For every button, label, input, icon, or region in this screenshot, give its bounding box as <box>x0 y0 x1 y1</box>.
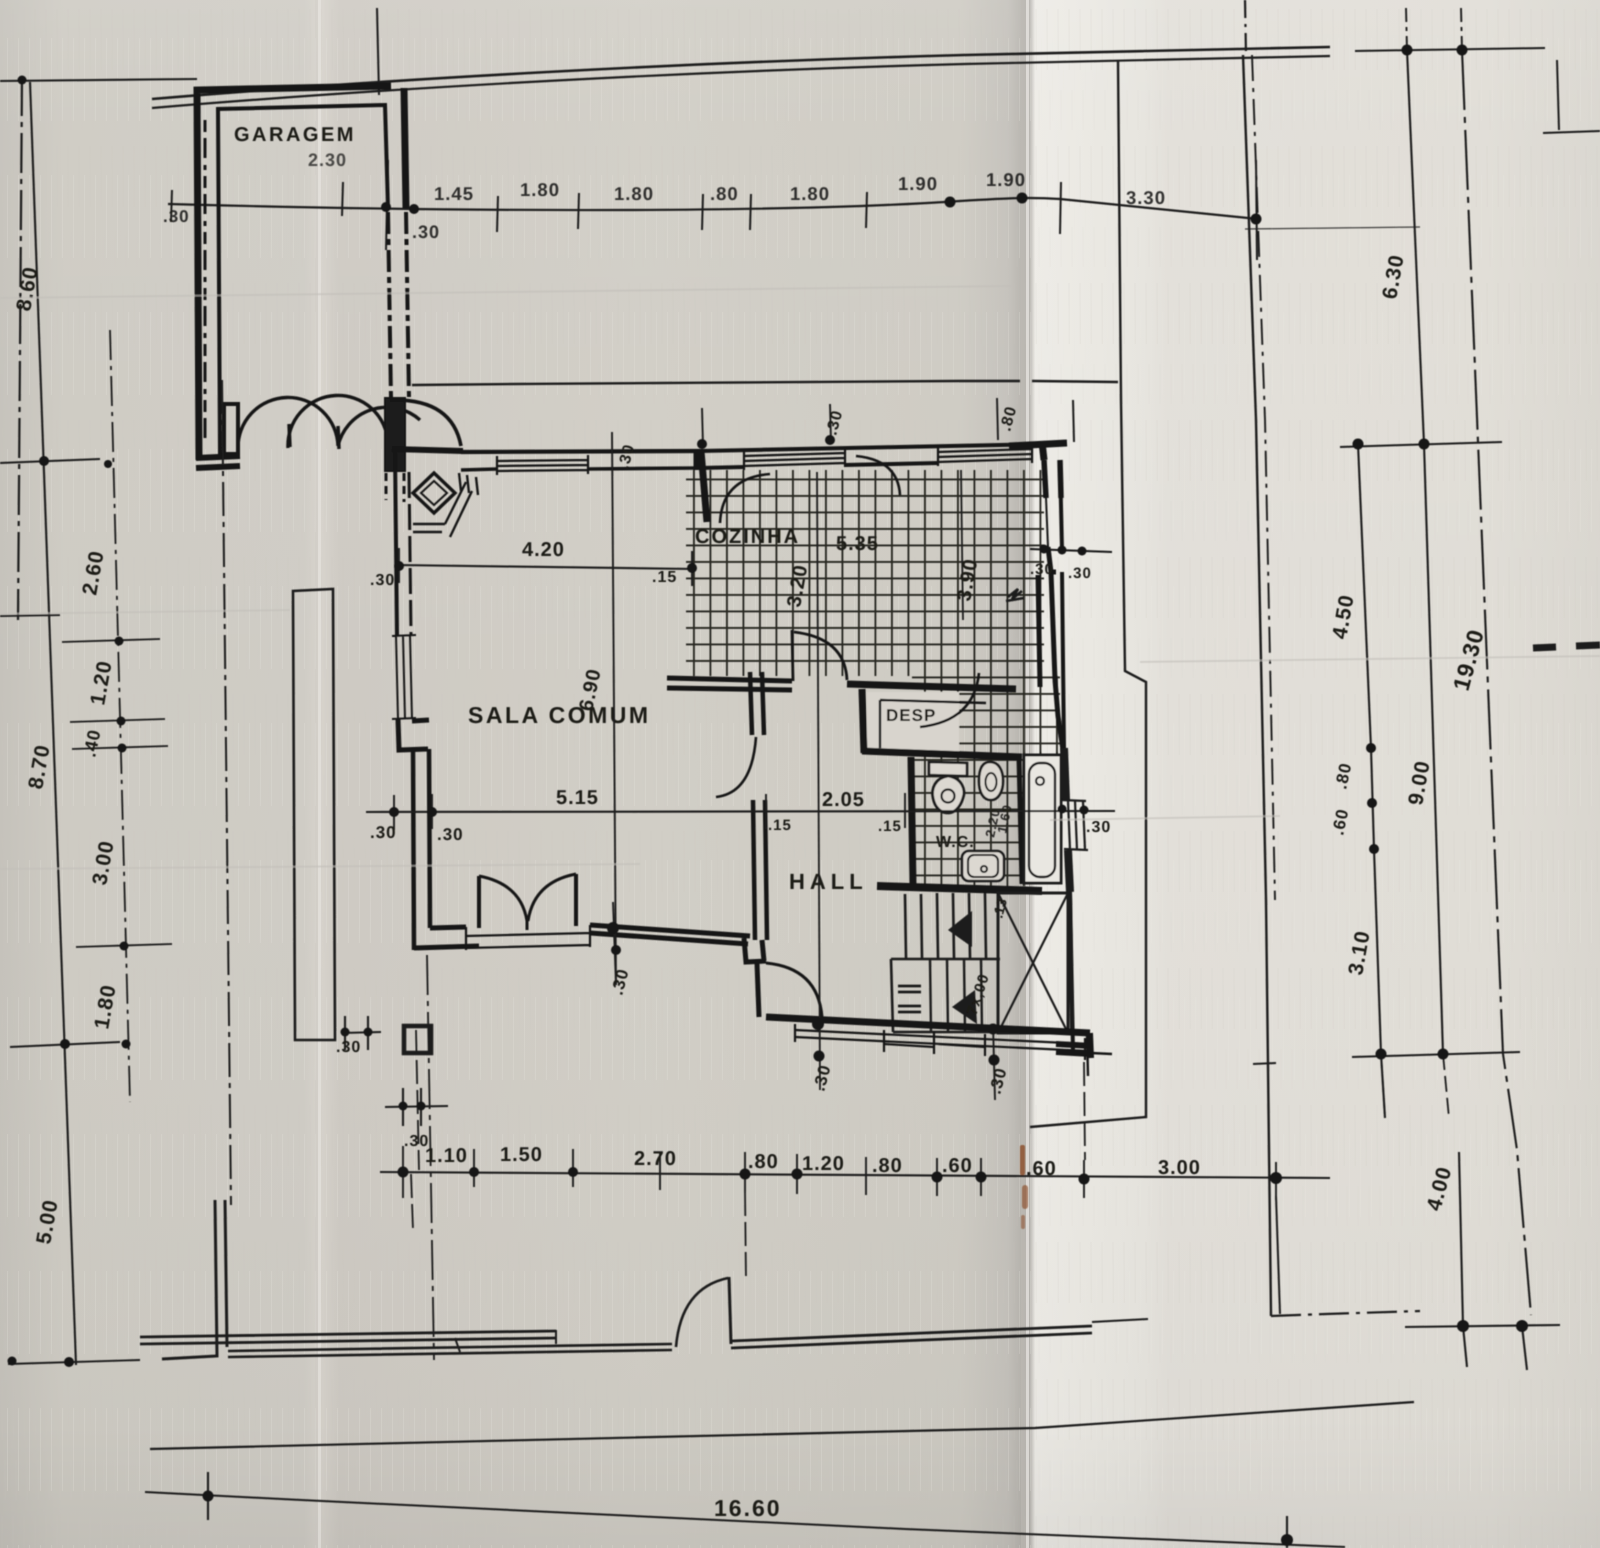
svg-text:.80: .80 <box>872 1155 903 1177</box>
svg-text:16.60: 16.60 <box>714 1495 782 1521</box>
svg-text:3.00: 3.00 <box>1158 1157 1201 1179</box>
svg-text:SALA COMUM: SALA COMUM <box>468 702 651 728</box>
svg-text:.30: .30 <box>370 572 395 589</box>
svg-text:4.20: 4.20 <box>522 539 565 561</box>
svg-text:.60: .60 <box>1026 1158 1057 1180</box>
svg-text:2.05: 2.05 <box>822 789 865 811</box>
svg-text:5.35: 5.35 <box>836 533 879 555</box>
svg-text:1.80: 1.80 <box>790 183 830 204</box>
svg-text:W.C.: W.C. <box>936 834 975 851</box>
svg-text:.80: .80 <box>748 1151 779 1173</box>
svg-text:.30: .30 <box>1086 819 1111 836</box>
svg-text:.30: .30 <box>163 207 190 226</box>
svg-text:.15: .15 <box>768 817 792 834</box>
svg-text:.30: .30 <box>437 825 464 844</box>
svg-text:GARAGEM: GARAGEM <box>234 124 356 146</box>
svg-text:.30: .30 <box>1068 565 1092 582</box>
svg-text:1.50: 1.50 <box>500 1144 543 1166</box>
svg-text:HALL: HALL <box>789 869 868 894</box>
svg-text:3.30: 3.30 <box>1126 187 1166 208</box>
svg-text:.60: .60 <box>942 1155 973 1177</box>
svg-text:1.80: 1.80 <box>614 183 654 204</box>
svg-text:DESP: DESP <box>886 706 936 725</box>
svg-text:.80: .80 <box>710 183 739 204</box>
svg-text:.30: .30 <box>370 823 397 842</box>
svg-text:.30: .30 <box>1030 561 1054 578</box>
svg-text:COZINHA: COZINHA <box>695 526 800 548</box>
svg-text:2.30: 2.30 <box>308 150 347 170</box>
svg-text:1.20: 1.20 <box>802 1153 845 1175</box>
svg-text:1.80: 1.80 <box>520 179 560 200</box>
svg-text:1.10: 1.10 <box>425 1145 468 1167</box>
svg-text:5.15: 5.15 <box>556 787 599 809</box>
svg-text:1.45: 1.45 <box>434 183 474 204</box>
svg-text:2.70: 2.70 <box>634 1148 677 1170</box>
svg-text:.15: .15 <box>652 569 677 586</box>
svg-text:1.90: 1.90 <box>898 173 938 194</box>
svg-text:.30: .30 <box>412 222 440 242</box>
svg-text:.30: .30 <box>336 1039 361 1056</box>
svg-text:.15: .15 <box>878 818 902 835</box>
svg-text:1.90: 1.90 <box>986 169 1026 190</box>
